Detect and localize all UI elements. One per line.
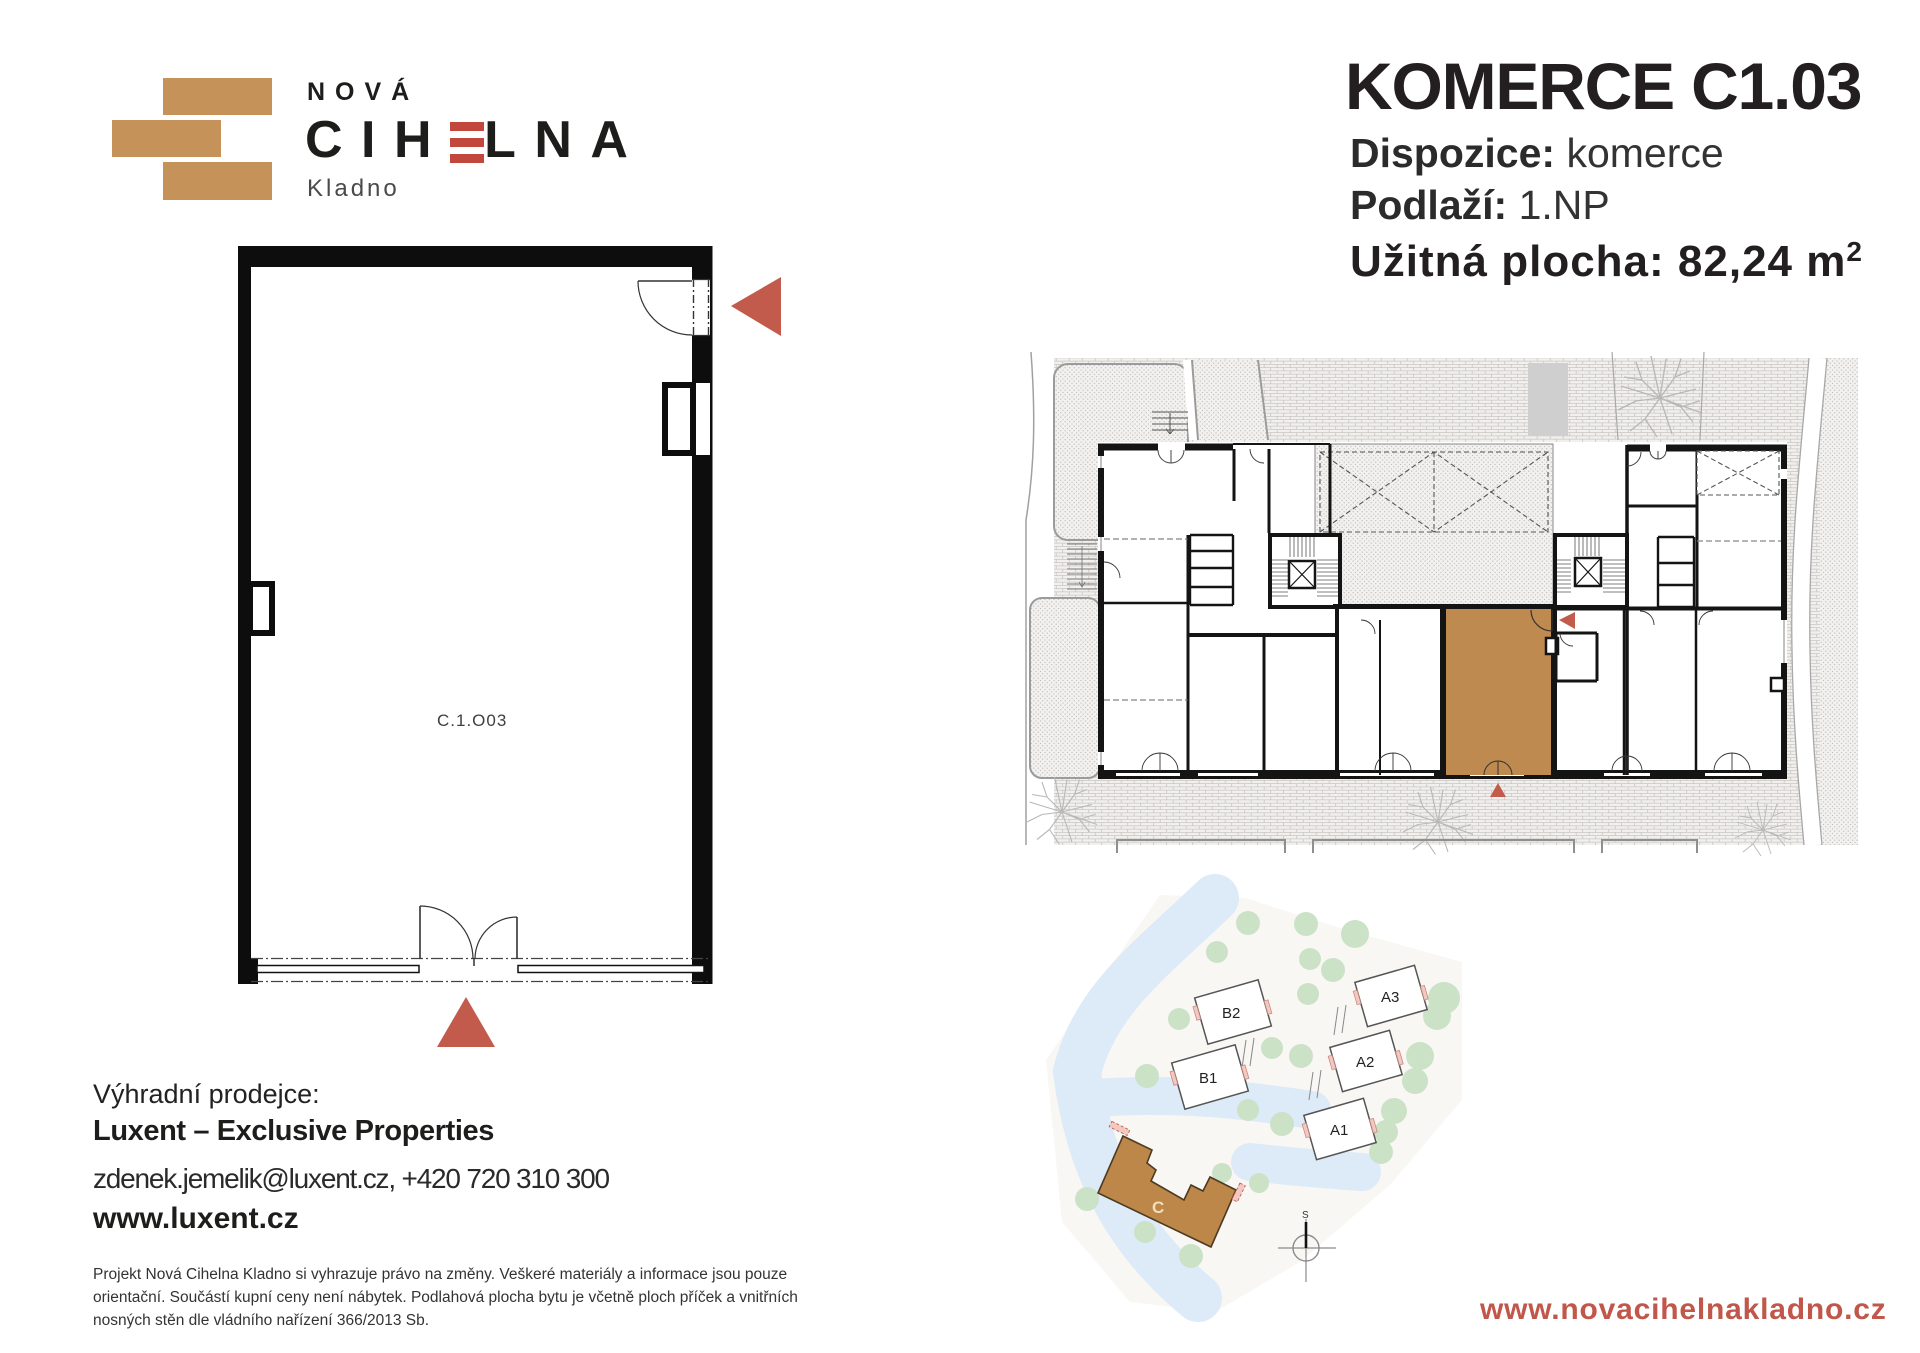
svg-text:A1: A1 bbox=[1330, 1122, 1348, 1139]
svg-text:C: C bbox=[1152, 1198, 1164, 1217]
svg-text:A3: A3 bbox=[1381, 989, 1399, 1006]
svg-text:A2: A2 bbox=[1356, 1054, 1374, 1071]
svg-text:B1: B1 bbox=[1199, 1070, 1217, 1087]
svg-text:B2: B2 bbox=[1222, 1005, 1240, 1022]
svg-text:C.1.O03: C.1.O03 bbox=[437, 711, 507, 730]
svg-text:S: S bbox=[1302, 1210, 1309, 1221]
